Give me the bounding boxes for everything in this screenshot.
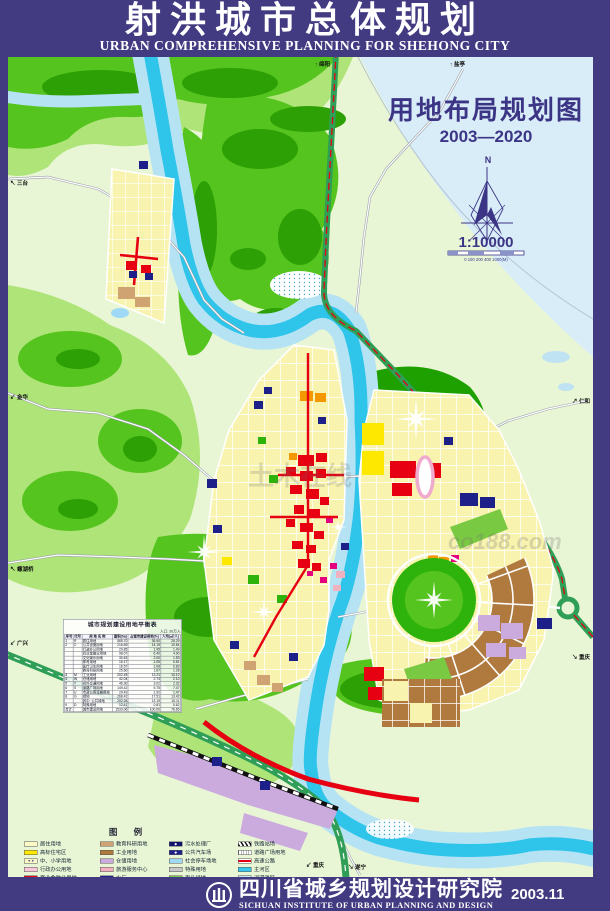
edge-label-yanting: ↑ 盐亭: [450, 60, 466, 68]
legend-label: 仓储用地: [116, 857, 137, 865]
map-period: 2003—2020: [440, 127, 533, 146]
watermark-en: co188.com: [448, 529, 562, 554]
legend-item: 旅游服务中心: [100, 865, 169, 874]
edge-label-guangxing: ↙ 广兴: [10, 639, 29, 647]
legend-item: 高速公路: [238, 857, 324, 866]
edge-label-renhe: ↗ 仁和: [572, 397, 591, 405]
legend-item: 中、小学用地: [24, 857, 100, 866]
legend-swatch-icon: [24, 850, 38, 855]
pond: [542, 351, 570, 363]
legend-title: 图 例: [24, 825, 234, 838]
map-title: 用地布局规划图: [388, 95, 584, 125]
table-note: 人口: 20万人: [64, 629, 180, 634]
legend-item: ◆污水处理厂: [169, 840, 238, 849]
legend-swatch-icon: [238, 867, 252, 872]
legend-swatch-icon: [238, 841, 252, 846]
legend-item: 教育科研用地: [100, 840, 169, 849]
legend-label: 社会停车场地: [185, 857, 217, 865]
legend-swatch-icon: [238, 858, 252, 863]
north-label: N: [485, 155, 492, 165]
footer-date: 2003.11: [511, 886, 564, 903]
legend-item: 道路广场用地: [238, 848, 324, 857]
legend-swatch-icon: [24, 867, 38, 872]
legend-item: 居住用地: [24, 840, 100, 849]
stadium: [417, 457, 433, 497]
edge-label-chongqing_e: ↘ 重庆: [572, 653, 591, 661]
legend-swatch-icon: [24, 841, 38, 846]
legend-swatch-icon: ◆: [169, 841, 183, 846]
legend-label: 教育科研用地: [116, 840, 148, 848]
edge-label-jinhua: ↙ 金华: [10, 393, 29, 401]
table-row: 合计城市建设用地1533.06100.0076.65: [65, 707, 181, 711]
table-title: 城市规划建设用地平衡表: [64, 620, 180, 629]
legend-label: 旅游服务中心: [116, 866, 148, 874]
legend-label: 特殊用地: [185, 866, 206, 874]
legend-item: 铁路站场: [238, 840, 324, 849]
pond: [558, 383, 574, 391]
map-canvas: 土木在线 co188.com 用地布局规划图 2003—2020 N 1:100…: [8, 57, 593, 877]
legend-item: ◆公共汽车场: [169, 848, 238, 857]
legend-swatch-icon: [100, 858, 114, 863]
legend-item: 特殊用地: [169, 865, 238, 874]
legend-label: 高标住宅区: [40, 849, 66, 857]
poster: { "header": { "title_cn": "射洪城市总体规划", "t…: [0, 0, 610, 911]
edge-label-luohuqiao: ↖ 螺湖桥: [10, 565, 34, 573]
legend-label: 主河区: [254, 866, 270, 874]
institute-name-en: SICHUAN INSTITUTE OF URBAN PLANNING AND …: [239, 900, 503, 910]
watermark-cn: 土木在线: [248, 461, 352, 491]
legend-item: 社会停车场地: [169, 857, 238, 866]
northwest-town: [106, 161, 174, 323]
institute-logo: [205, 881, 233, 909]
legend-swatch-icon: [100, 850, 114, 855]
legend-label: 行政办公用地: [40, 866, 72, 874]
legend-label: 居住用地: [40, 840, 61, 848]
legend-item: 高标住宅区: [24, 848, 100, 857]
edge-label-suining: ↘ 遂宁: [348, 863, 367, 871]
legend-swatch-icon: [238, 850, 252, 855]
poster-header: 射洪城市总体规划 URBAN COMPREHENSIVE PLANNING FO…: [0, 0, 610, 57]
land-balance-table: 城市规划建设用地平衡表 人口: 20万人 序号代号用 地 名 称面积(ha)占城…: [63, 619, 183, 724]
institute-name-cn: 四川省城乡规划设计研究院: [239, 879, 503, 900]
legend-swatch-icon: [169, 858, 183, 863]
legend-swatch-icon: [24, 858, 38, 863]
scale-label: 1:10000: [458, 234, 513, 251]
legend-swatch-icon: [100, 867, 114, 872]
legend-label: 污水处理厂: [185, 840, 211, 848]
poster-footer: 四川省城乡规划设计研究院 SICHUAN INSTITUTE OF URBAN …: [0, 877, 610, 911]
legend-item: 工业用地: [100, 848, 169, 857]
legend-swatch-icon: ◆: [169, 850, 183, 855]
legend-swatch-icon: [169, 867, 183, 872]
poster-title-cn: 射洪城市总体规划: [0, 1, 610, 39]
legend-label: 工业用地: [116, 849, 137, 857]
legend-swatch-icon: [100, 841, 114, 846]
legend-label: 道路广场用地: [254, 849, 286, 857]
legend-label: 公共汽车场: [185, 849, 211, 857]
legend-label: 铁路站场: [254, 840, 275, 848]
map-legend: 图 例 居住用地高标住宅区中、小学用地行政办公用地商业金融业用地◆市场用地文化娱…: [24, 825, 324, 877]
legend-item: 行政办公用地: [24, 865, 100, 874]
scale-ticks: 0 100 200 400 1000(M): [464, 257, 508, 262]
poster-title-en: URBAN COMPREHENSIVE PLANNING FOR SHEHONG…: [0, 39, 610, 53]
legend-item: 仓储用地: [100, 857, 169, 866]
edge-label-santai: ↖ 三台: [10, 179, 29, 187]
planning-map: 土木在线 co188.com 用地布局规划图 2003—2020 N 1:100…: [8, 57, 593, 877]
legend-label: 高速公路: [254, 857, 275, 865]
scale-bar: [448, 251, 524, 255]
legend-item: 主河区: [238, 865, 324, 874]
edge-label-mianyang: ↑ 绵阳: [315, 60, 331, 68]
legend-label: 中、小学用地: [40, 857, 72, 865]
